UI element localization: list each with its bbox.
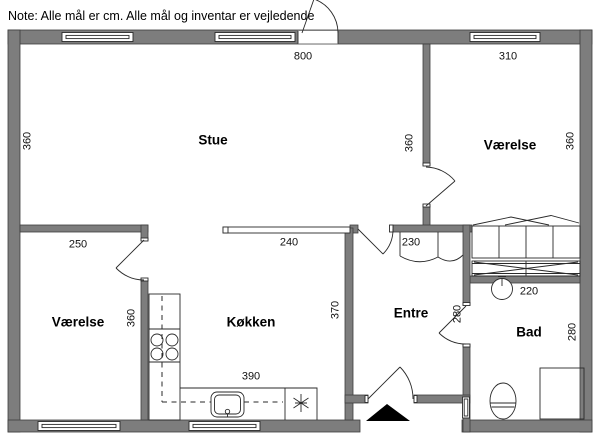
- floor-plan-drawing: [0, 0, 600, 437]
- dim-entre-bad-door: 280: [453, 305, 464, 323]
- shower-icon: [540, 368, 584, 419]
- wall-entre-south-left: [345, 395, 368, 403]
- wall-vaerelse-sw-north: [20, 225, 148, 232]
- kitchen-fixtures: [149, 294, 317, 420]
- kitchen-counter-island: [223, 227, 350, 233]
- bathroom-fixtures: [463, 277, 585, 420]
- wall-bottom-right: [462, 420, 592, 432]
- wall-stue-vaerelse: [423, 44, 430, 165]
- wall-bad-north: [470, 276, 580, 283]
- note-text: Note: Alle mål er cm. Alle mål og invent…: [8, 9, 314, 23]
- wall-entre-east-lower: [463, 344, 470, 432]
- dim-bad-depth: 280: [568, 323, 579, 341]
- dim-entre-closet: 230: [402, 238, 420, 249]
- kitchen-counter: [180, 388, 317, 420]
- dim-vaerelse-sw-width: 250: [69, 240, 87, 251]
- dim-vaerelse-sw-depth: 360: [127, 309, 138, 327]
- room-label-entre: Entre: [394, 306, 429, 320]
- wall-koekken-entre: [345, 228, 353, 420]
- dim-stue-width: 800: [294, 52, 312, 63]
- entrance-arrow-icon: [366, 404, 410, 421]
- wall-entre-north: [393, 225, 472, 232]
- window-icon: [215, 33, 295, 42]
- dim-koekken-depth: 370: [331, 301, 342, 319]
- dim-stue-right-depth: 360: [405, 134, 416, 152]
- stove-icon: [151, 334, 178, 360]
- dim-bad-sink-wall: 220: [520, 287, 538, 298]
- room-label-vaerelse-sw: Værelse: [52, 315, 105, 329]
- door-swing-icon: [358, 225, 393, 254]
- dishwasher-icon: [294, 394, 309, 412]
- window-icon: [470, 33, 540, 42]
- wardrobe-icon: [472, 216, 580, 277]
- door-swing-icon: [365, 367, 417, 403]
- radiator-icon: [463, 397, 470, 418]
- window-icon: [38, 422, 120, 431]
- door-swing-icon: [423, 163, 455, 207]
- toilet-icon: [490, 383, 516, 419]
- wall-entre-east-upper: [463, 225, 470, 305]
- kitchen-counter: [149, 294, 180, 420]
- window-icon: [62, 33, 133, 42]
- dim-koekken-width: 390: [242, 372, 260, 383]
- room-label-koekken: Køkken: [227, 315, 276, 329]
- wall-vaerelse-sw-east: [141, 280, 148, 420]
- dim-vaerelse-ne-width: 310: [499, 52, 517, 63]
- wall-left: [8, 30, 20, 432]
- dim-counter-length: 240: [280, 238, 298, 249]
- room-label-vaerelse-ne: Værelse: [484, 138, 537, 152]
- kitchen-sink-icon: [211, 392, 244, 418]
- window-icon: [189, 422, 260, 431]
- room-label-stue: Stue: [198, 133, 227, 147]
- dim-stue-left-depth: 360: [23, 132, 34, 150]
- door-swing-icon: [116, 238, 148, 281]
- wall-right: [580, 30, 592, 432]
- room-label-bad: Bad: [516, 325, 542, 339]
- floor-plan: Note: Alle mål er cm. Alle mål og invent…: [0, 0, 600, 437]
- wall-entre-south-right: [414, 395, 470, 403]
- dim-vaerelse-ne-depth: 360: [566, 132, 577, 150]
